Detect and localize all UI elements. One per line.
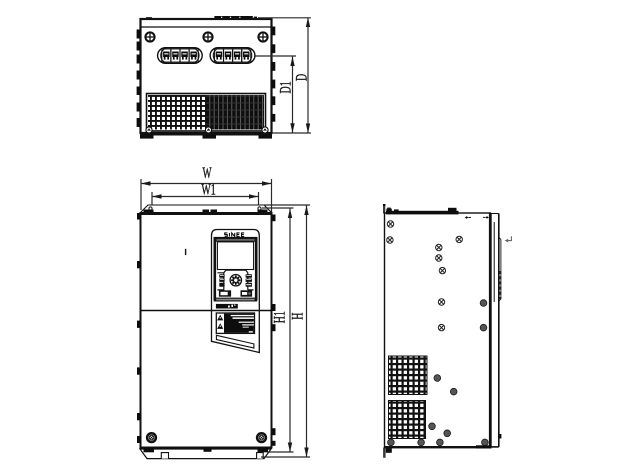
svg-text:D1: D1 [276, 81, 294, 93]
svg-text:W1: W1 [201, 180, 215, 198]
svg-text:H1: H1 [270, 311, 288, 323]
svg-text:H: H [288, 312, 306, 319]
svg-text:D: D [292, 74, 310, 81]
svg-text:W: W [202, 164, 211, 182]
